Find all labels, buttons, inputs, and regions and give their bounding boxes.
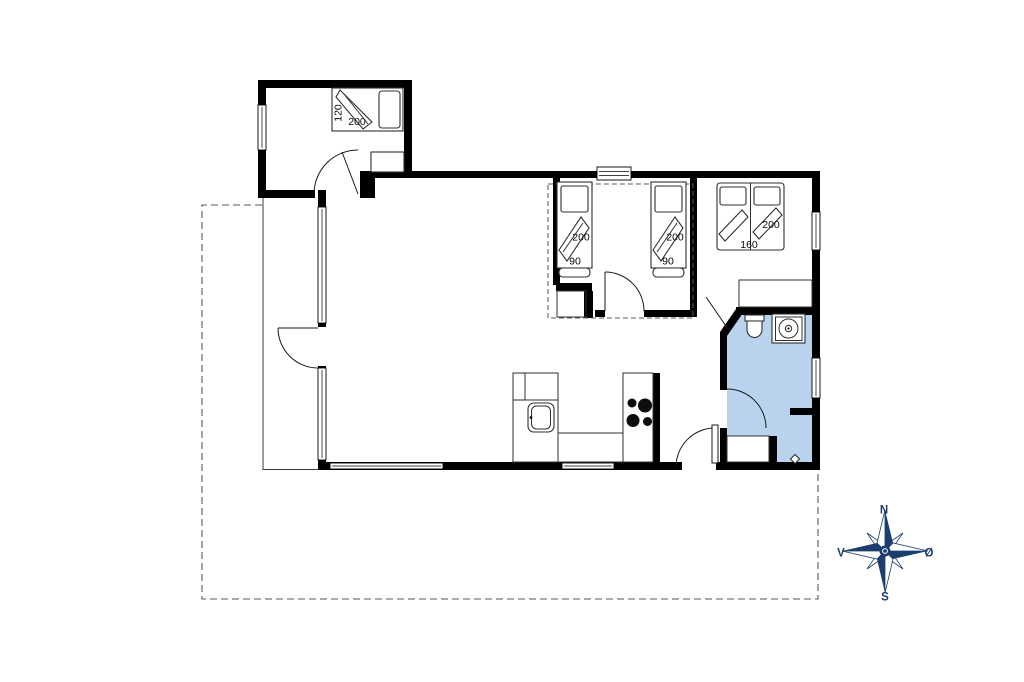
kitchen-counter-bottom bbox=[558, 433, 623, 462]
washing-machine-knob bbox=[787, 327, 789, 329]
bathroom-left-wall-upper bbox=[720, 332, 727, 390]
stove-burner-3 bbox=[627, 414, 640, 427]
twin-closet-top-wall bbox=[556, 283, 592, 291]
stove-burner-2 bbox=[638, 399, 652, 413]
twin-bed-2-length-label: 200 bbox=[666, 232, 684, 244]
twin-bed-2-pillow bbox=[655, 186, 682, 212]
bathroom-closet-wall bbox=[769, 436, 777, 462]
toilet-bowl bbox=[747, 321, 762, 338]
annex-bed-pillow bbox=[379, 91, 400, 128]
annex-top-wall bbox=[258, 80, 412, 88]
compass-e-light bbox=[885, 543, 928, 551]
twin-bedroom: 200 90 200 90 bbox=[557, 182, 686, 317]
compass-rose: N S Ø V bbox=[837, 505, 933, 604]
annex-nightstand bbox=[371, 152, 404, 172]
twin-room-top-window bbox=[597, 167, 631, 180]
twin-closet-right-wall bbox=[584, 291, 593, 318]
compass-west-label: V bbox=[837, 548, 845, 560]
annex-bed-width-label: 120 bbox=[333, 104, 345, 122]
twin-bed-1-pillow bbox=[561, 186, 588, 212]
kitchen-faucet-dot bbox=[530, 416, 533, 419]
terrace-door-arc bbox=[278, 328, 318, 368]
entrance-door-leaf bbox=[712, 425, 718, 463]
twin-room-bottom-wall-right bbox=[644, 310, 697, 317]
double-bed-length-label: 200 bbox=[762, 219, 780, 231]
toilet-tank bbox=[745, 315, 764, 321]
annex-bedroom: 120 200 bbox=[332, 88, 404, 172]
twin-room-door-arc bbox=[605, 272, 644, 311]
terrace-edge-line bbox=[263, 198, 318, 470]
terrace-door-gap bbox=[318, 327, 326, 366]
entrance-door-gap bbox=[682, 462, 716, 470]
annex-door-arc bbox=[314, 150, 358, 194]
annex-right-wall bbox=[404, 80, 412, 178]
double-bedroom: 200 160 bbox=[717, 183, 812, 307]
double-bedroom-door-leaf bbox=[706, 297, 728, 329]
twin-bed-2-width-label: 90 bbox=[662, 256, 674, 268]
twin-room-bottom-wall-left bbox=[595, 310, 605, 317]
floor-plan-page: 120 200 200 90 200 90 200 160 bbox=[0, 0, 1024, 682]
annex-bottom-wall bbox=[258, 190, 315, 198]
kitchen-hall-wall bbox=[653, 373, 660, 462]
bathroom-left-wall-lower bbox=[720, 428, 727, 462]
annex-bed-length-label: 200 bbox=[348, 116, 366, 128]
bathroom-stub-wall bbox=[790, 408, 812, 415]
compass-south-label: S bbox=[881, 592, 889, 604]
twin-bed-1-length-label: 200 bbox=[572, 232, 590, 244]
annex-door-leaf bbox=[342, 152, 358, 194]
compass-w-light bbox=[842, 551, 885, 559]
entrance-door-arc bbox=[676, 428, 715, 467]
kitchen bbox=[513, 373, 653, 462]
double-bed-pillow-left bbox=[720, 187, 746, 205]
compass-east-label: Ø bbox=[925, 548, 934, 560]
twin-closet bbox=[557, 291, 586, 317]
stove-burner-1 bbox=[628, 399, 637, 408]
double-bedroom-wardrobe bbox=[739, 280, 812, 307]
double-bed-pillow-right bbox=[754, 187, 780, 205]
main-top-wall bbox=[362, 171, 820, 178]
twin-bed-1-foot bbox=[559, 268, 590, 277]
double-bed-width-label: 160 bbox=[740, 239, 758, 251]
terrace-dashed-outline bbox=[202, 205, 818, 599]
compass-north-label: N bbox=[880, 505, 888, 517]
bathroom-closet bbox=[727, 436, 769, 462]
compass-center bbox=[880, 546, 891, 557]
stove-burner-4 bbox=[643, 417, 652, 426]
floor-plan-svg: 120 200 200 90 200 90 200 160 bbox=[0, 0, 1024, 682]
twin-bed-2-foot bbox=[653, 268, 684, 277]
twin-bed-1-width-label: 90 bbox=[569, 256, 581, 268]
compass-s-light bbox=[885, 551, 893, 593]
